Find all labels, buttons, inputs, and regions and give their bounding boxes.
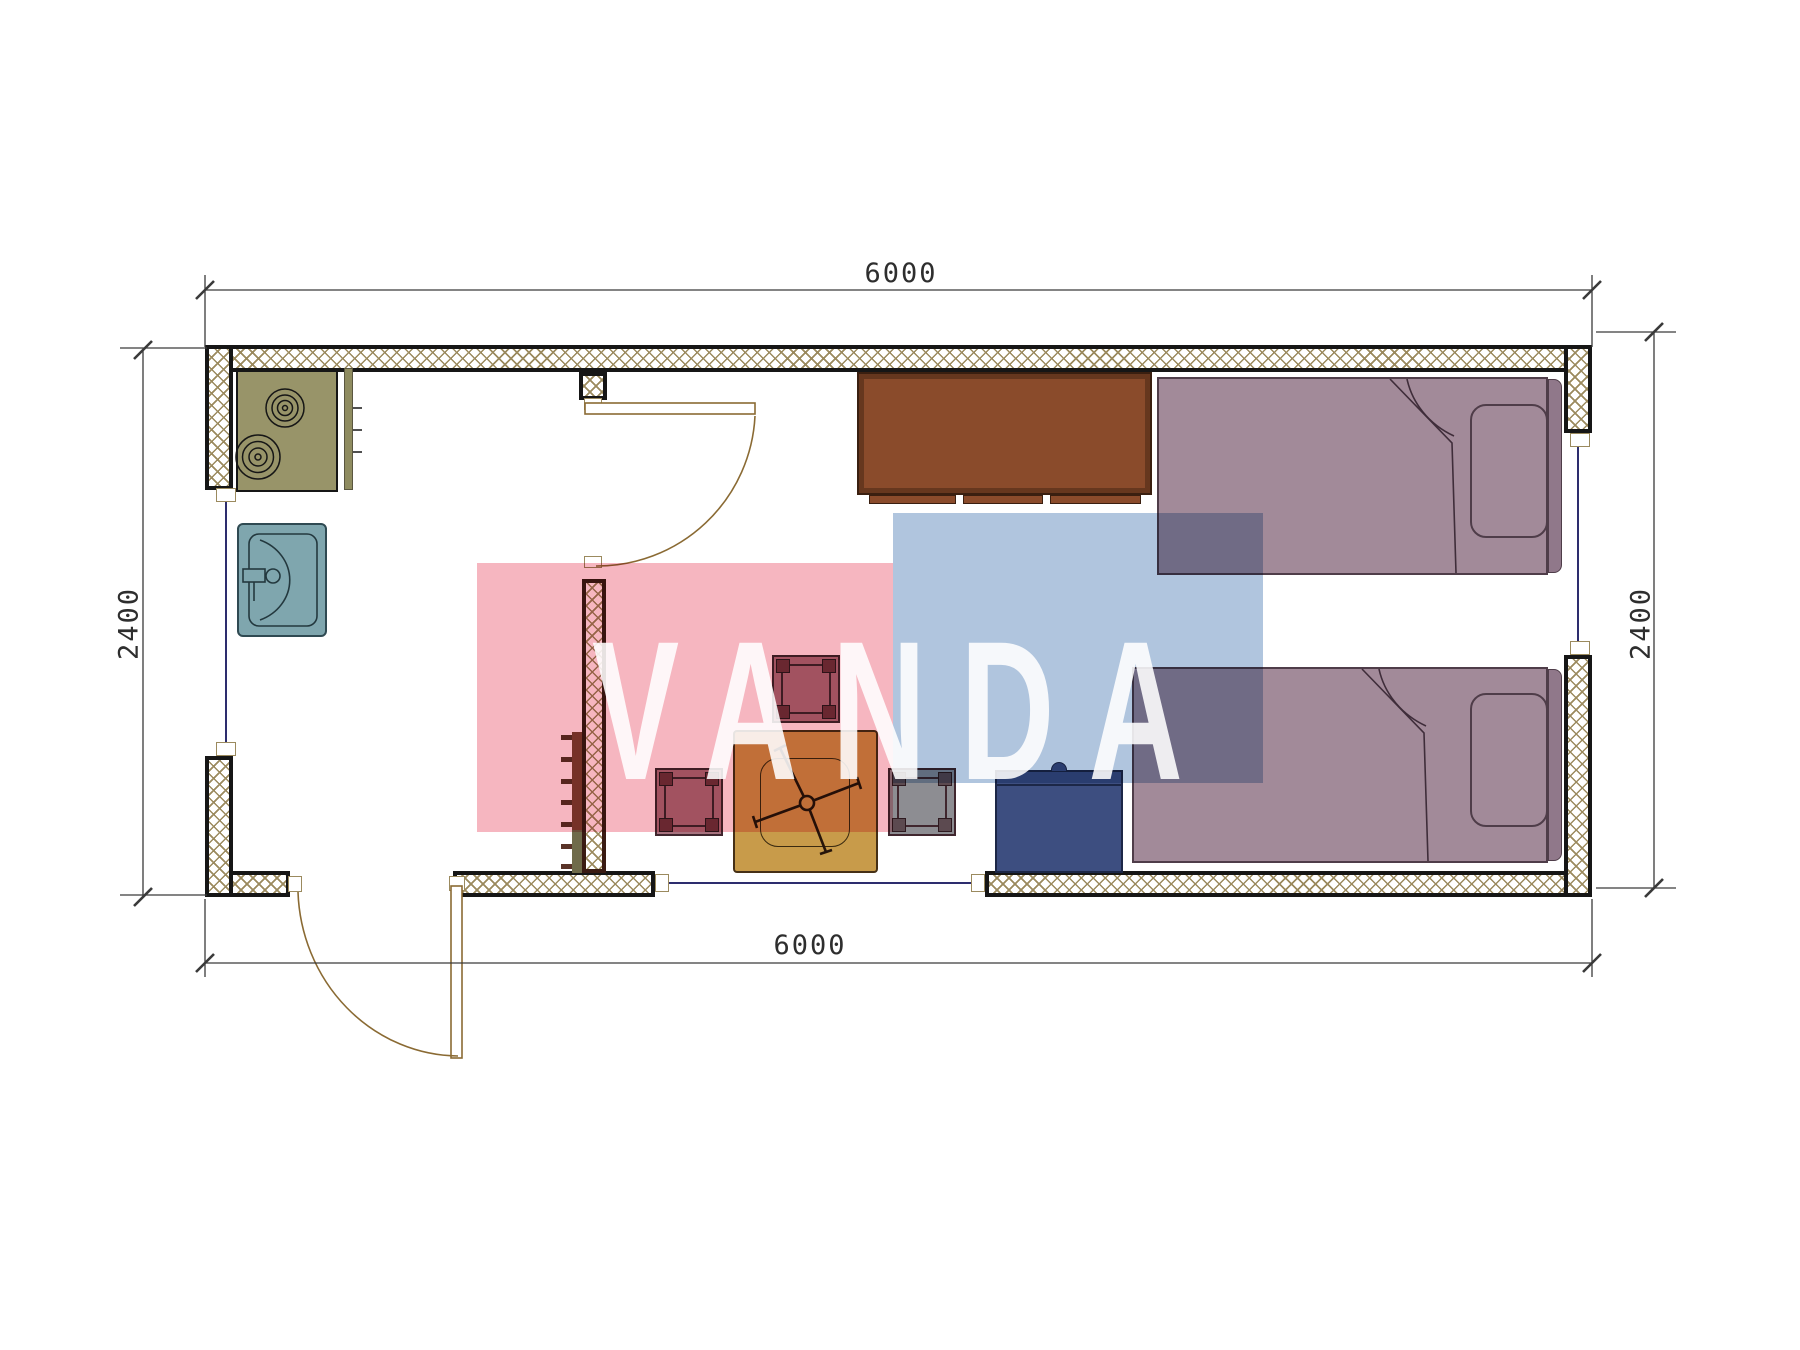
counter-strip [344, 368, 353, 490]
dim-left: 2400 [114, 569, 145, 679]
window-cap [971, 874, 985, 892]
window-left [225, 502, 227, 742]
bed-top-rail [1548, 379, 1562, 573]
stove [236, 370, 338, 492]
wall-left-upper [205, 345, 233, 490]
desk [857, 372, 1152, 495]
door-jamb-block [579, 372, 607, 400]
wall-top [205, 345, 1592, 372]
desk-foot [869, 495, 956, 504]
watermark-text: VANDA [592, 612, 1217, 810]
wall-bottom-right [985, 871, 1592, 897]
bed-bottom-rail [1548, 669, 1562, 861]
radiator-strip-lower [572, 830, 582, 873]
dim-bottom: 6000 [755, 930, 865, 961]
desk-foot [1050, 495, 1141, 504]
window-cap [216, 488, 236, 502]
door-interior [585, 403, 755, 566]
radiator-tick [561, 844, 572, 849]
window-cap [655, 874, 669, 892]
sink [237, 523, 327, 637]
wall-right-upper [1564, 345, 1592, 433]
window-cap [1570, 641, 1590, 655]
window-cap [1570, 433, 1590, 447]
wall-bottom-left [229, 871, 290, 897]
dim-top: 6000 [846, 258, 956, 289]
door-cap [584, 398, 602, 410]
dim-right: 2400 [1626, 569, 1657, 679]
bed-top-pillow [1470, 404, 1548, 538]
door-cap [449, 876, 465, 891]
window-bottom [669, 882, 971, 884]
window-cap [216, 742, 236, 756]
floor-plan-canvas: 6000 6000 2400 2400 VANDA [0, 0, 1800, 1350]
wall-right-lower [1564, 655, 1592, 897]
radiator-tick [561, 864, 572, 869]
window-right [1577, 447, 1579, 641]
door-cap [288, 876, 302, 892]
door-exterior [298, 886, 462, 1058]
wall-bottom-middle [453, 871, 655, 897]
desk-foot [963, 495, 1043, 504]
bed-bottom-pillow [1470, 693, 1548, 827]
